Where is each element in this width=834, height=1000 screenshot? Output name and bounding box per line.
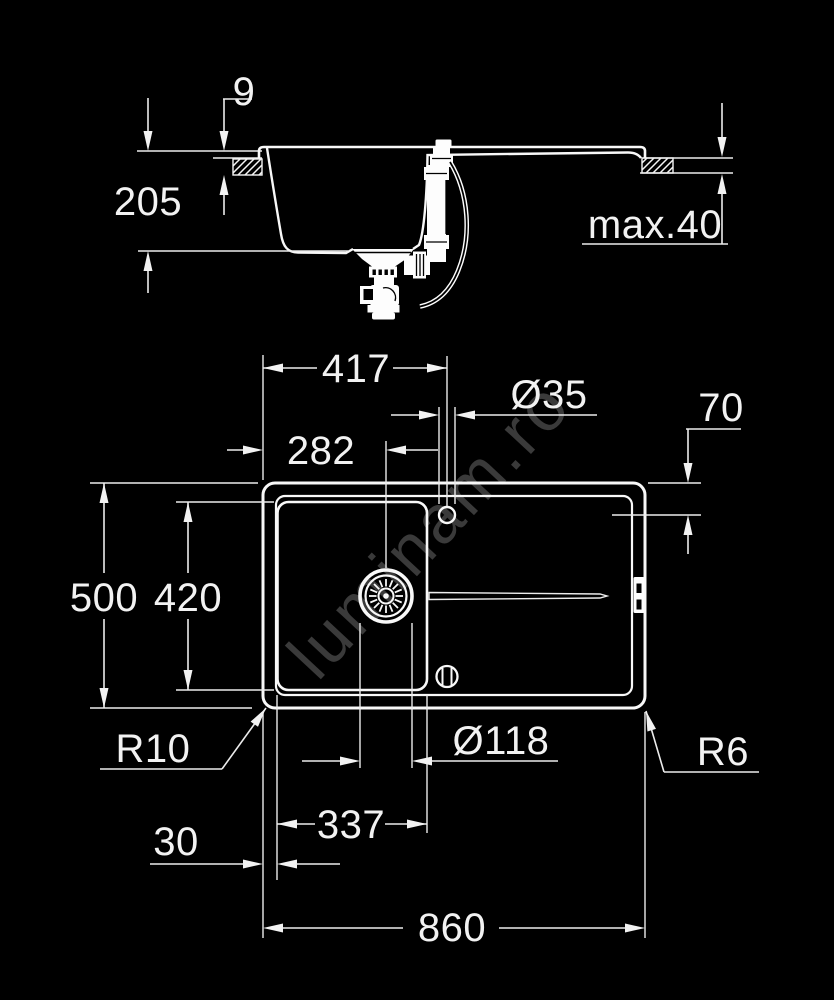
- dim-label-30: 30: [153, 820, 199, 864]
- dim-label-9: 9: [233, 70, 256, 114]
- countertop-hatch-right: [642, 158, 673, 173]
- dim-faucet-from-top: 70: [684, 386, 744, 554]
- drain-assembly: [352, 249, 430, 320]
- drainboard-groove: [429, 593, 607, 600]
- dim-label-420: 420: [154, 576, 222, 620]
- dim-overall-depth: 500: [70, 483, 138, 708]
- dim-depth-205: 205: [114, 98, 182, 293]
- dim-outer-corner-radius: R10: [100, 708, 266, 771]
- dim-label-417: 417: [322, 347, 390, 391]
- overflow-slot: [634, 577, 645, 613]
- sink-technical-drawing: luminam.ro: [0, 0, 834, 1000]
- dim-label-70: 70: [698, 386, 744, 430]
- drawing-svg: luminam.ro: [0, 0, 834, 1000]
- dim-label-r10: R10: [116, 727, 191, 771]
- dim-drain-diameter: Ø118: [302, 719, 558, 766]
- dim-label-500: 500: [70, 576, 138, 620]
- dim-label-337: 337: [317, 803, 385, 847]
- dim-countertop-thickness: max.40: [582, 103, 728, 247]
- dim-label-860: 860: [418, 906, 486, 950]
- dim-label-205: 205: [114, 180, 182, 224]
- dim-faucet-from-left: 417: [263, 347, 447, 391]
- dim-inner-corner-radius: R6: [646, 711, 759, 774]
- dim-rim-height: 9: [220, 70, 256, 215]
- dim-label-282: 282: [287, 429, 355, 473]
- countertop-hatch-left: [233, 159, 262, 175]
- dim-bowl-inner-width: 337: [277, 803, 427, 847]
- sink-section-outline: [138, 147, 645, 253]
- dim-drain-from-left: 282: [227, 429, 438, 473]
- dim-rim-width-left: 30: [150, 820, 340, 869]
- drain-knob: [437, 666, 458, 687]
- dim-label-o35: Ø35: [510, 373, 587, 417]
- dim-bowl-inner-depth: 420: [154, 502, 222, 690]
- plan-view: 417 Ø35 282 500: [70, 347, 759, 950]
- dim-overall-width: 860: [263, 906, 645, 950]
- dim-label-o118: Ø118: [453, 719, 550, 763]
- dim-label-r6: R6: [697, 730, 749, 774]
- section-view: 9 205 max.40: [114, 70, 733, 320]
- dim-label-max40: max.40: [588, 203, 722, 247]
